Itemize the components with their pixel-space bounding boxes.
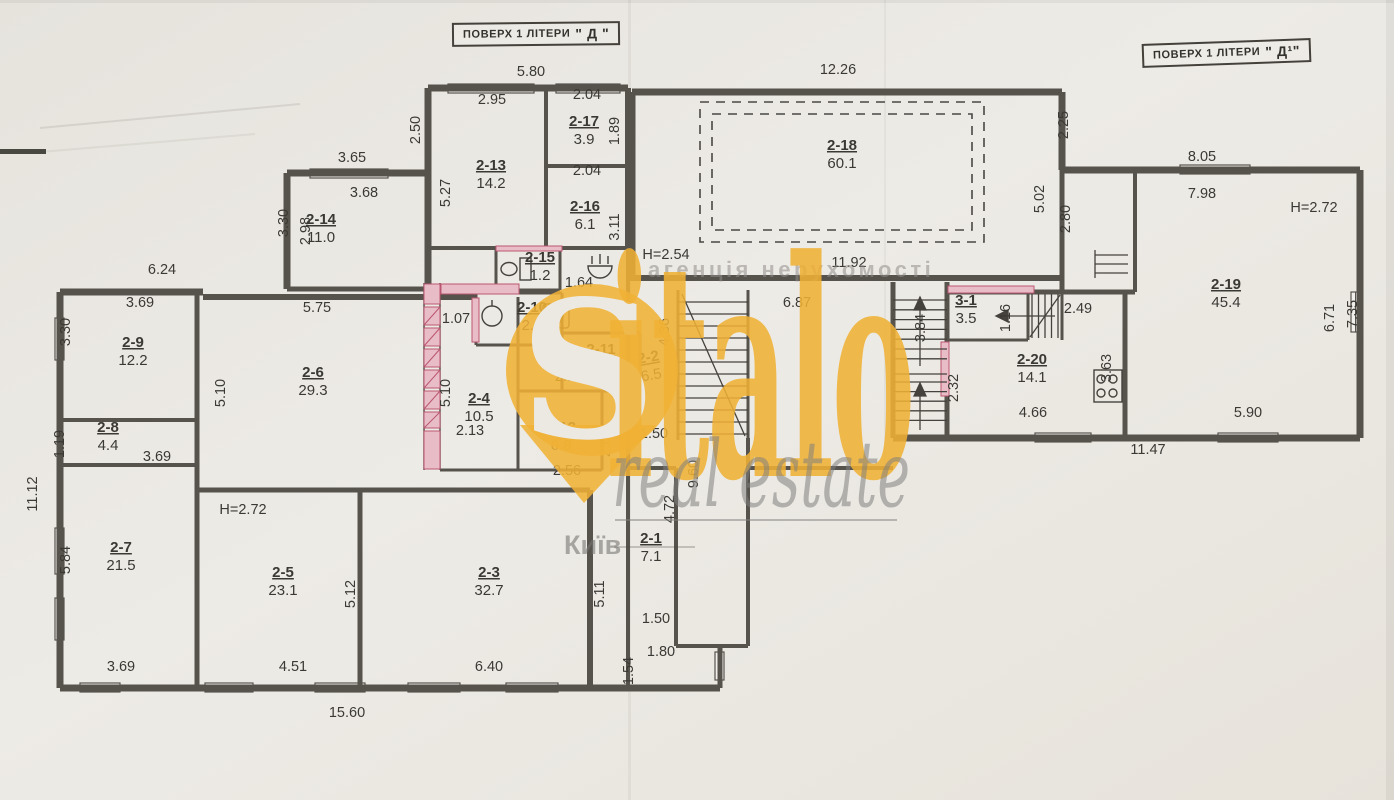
- paper-edge-shadow: [1386, 0, 1394, 800]
- dimension-label: 6.24: [148, 262, 176, 278]
- dimension-label: 8.05: [1188, 149, 1216, 165]
- room-number: 2-4: [468, 390, 490, 407]
- room-number: 2-17: [569, 113, 599, 130]
- dimension-label: 5.12: [343, 580, 359, 608]
- dimension-label: 12.26: [820, 62, 856, 78]
- dimension-label: 3.63: [1099, 354, 1115, 382]
- room-number: 2-20: [1017, 351, 1047, 368]
- room-number: 2-7: [110, 539, 132, 556]
- dimension-label: 2.13: [456, 423, 484, 439]
- room-area: 7.1: [641, 548, 662, 565]
- room-area: 21.5: [106, 557, 135, 574]
- dimension-label: 7.35: [1345, 300, 1361, 328]
- dimension-label: 5.02: [1032, 185, 1048, 213]
- room-label: 2-332.7: [474, 564, 503, 599]
- scanned-floor-plan: 2-1314.22-173.92-166.12-151.22-1411.02-1…: [0, 0, 1394, 800]
- dimension-label: 1.50: [642, 611, 670, 627]
- dimension-label: 2.04: [573, 163, 601, 179]
- dimension-label: 3.30: [58, 318, 74, 346]
- dimension-label: 5.84: [58, 546, 74, 574]
- room-label: 2-1945.4: [1211, 276, 1241, 311]
- room-area: 14.2: [476, 175, 505, 192]
- pink-wall: [472, 298, 479, 342]
- dimension-label: 6.71: [1322, 304, 1338, 332]
- dimension-label: 2.98: [298, 217, 314, 245]
- dimension-label: 1.80: [647, 644, 675, 660]
- dimension-label: H=2.72: [219, 502, 266, 518]
- stamp-letter: " Д ": [575, 25, 609, 41]
- watermark-city-text: Київ: [564, 530, 621, 560]
- room-area: 32.7: [474, 582, 503, 599]
- stamp-text: ПОВЕРХ 1 ЛІТЕРИ: [463, 28, 570, 41]
- dimension-label: 5.10: [438, 379, 454, 407]
- room-number: 2-13: [476, 157, 506, 174]
- room-number: 2-18: [827, 137, 857, 154]
- floor-plan-canvas: 2-1314.22-173.92-166.12-151.22-1411.02-1…: [0, 0, 1394, 800]
- room-number: 2-19: [1211, 276, 1241, 293]
- stamp-letter: " Д¹": [1265, 42, 1300, 59]
- dimension-label: 5.10: [213, 379, 229, 407]
- pink-wall: [424, 431, 440, 469]
- room-label: 2-1860.1: [827, 137, 857, 172]
- dimension-label: 1.54: [621, 657, 637, 685]
- room-number: 2-3: [478, 564, 500, 581]
- dimension-label: 1.19: [52, 430, 68, 458]
- room-label: 2-912.2: [118, 334, 147, 369]
- dimension-label: 11.47: [1130, 442, 1165, 458]
- dimension-label: 4.51: [279, 659, 307, 675]
- room-area: 6.1: [575, 216, 596, 233]
- room-number: 3-1: [955, 292, 977, 309]
- room-label: 2-1314.2: [476, 157, 506, 192]
- room-area: 23.1: [268, 582, 297, 599]
- dimension-label: 5.80: [517, 64, 545, 80]
- floor-stamp-left: ПОВЕРХ 1 ЛІТЕРИ " Д ": [452, 21, 621, 47]
- dimension-label: 2.04: [573, 87, 601, 103]
- room-area: 60.1: [827, 155, 856, 172]
- dimension-label: 3.69: [107, 659, 135, 675]
- room-label: 2-410.5: [464, 390, 493, 425]
- room-number: 2-9: [122, 334, 144, 351]
- stamp-text: ПОВЕРХ 1 ЛІТЕРИ: [1153, 46, 1261, 62]
- dimension-label: 1.16: [998, 304, 1014, 332]
- dimension-label: 4.66: [1019, 405, 1047, 421]
- room-label: 2-2014.1: [1017, 351, 1047, 386]
- paper-edge-shadow: [0, 0, 1394, 3]
- dimension-label: 3.65: [338, 150, 366, 166]
- room-label: 2-523.1: [268, 564, 297, 599]
- scan-mark: [0, 149, 46, 154]
- room-number: 2-16: [570, 198, 600, 215]
- room-label: 3-13.5: [955, 292, 977, 327]
- dimension-label: 3.69: [143, 449, 171, 465]
- dimension-label: 7.98: [1188, 186, 1216, 202]
- dimension-label: 5.75: [303, 300, 331, 316]
- room-area: 14.1: [1017, 369, 1046, 386]
- dimension-label: 2.50: [408, 116, 424, 144]
- dimension-label: 1.07: [442, 311, 470, 327]
- dimension-label: 3.30: [276, 209, 292, 237]
- dimension-label: 15.60: [329, 705, 365, 721]
- dimension-label: 1.89: [607, 117, 623, 145]
- room-area: 3.9: [574, 131, 595, 148]
- dimension-label: 3.84: [913, 314, 929, 342]
- room-area: 3.5: [956, 310, 977, 327]
- dimension-label: 2.25: [1056, 111, 1072, 139]
- pink-wall: [441, 284, 519, 294]
- dimension-label: 6.40: [475, 659, 503, 675]
- dimension-label: 5.11: [592, 580, 608, 607]
- room-area: 4.4: [98, 437, 119, 454]
- dimension-label: 2.32: [946, 374, 962, 402]
- room-area: 29.3: [298, 382, 327, 399]
- room-number: 2-5: [272, 564, 294, 581]
- dimension-label: 2.95: [478, 92, 506, 108]
- dimension-label: 2.49: [1064, 301, 1092, 317]
- dimension-label: H=2.72: [1290, 200, 1337, 216]
- room-label: 2-84.4: [97, 419, 119, 454]
- room-label: 2-721.5: [106, 539, 135, 574]
- dimension-label: 5.27: [438, 179, 454, 207]
- watermark-tagline-text: real estate: [612, 421, 910, 528]
- dimension-label: 5.90: [1234, 405, 1262, 421]
- pink-wall: [424, 284, 440, 304]
- room-area: 12.2: [118, 352, 147, 369]
- dimension-label: 3.68: [350, 185, 378, 201]
- room-label: 2-629.3: [298, 364, 327, 399]
- room-area: 45.4: [1211, 294, 1240, 311]
- dimension-label: 2.80: [1058, 205, 1074, 233]
- room-number: 2-8: [97, 419, 119, 436]
- dimension-label: 11.12: [25, 476, 41, 511]
- room-number: 2-6: [302, 364, 324, 381]
- dimension-label: 3.69: [126, 295, 154, 311]
